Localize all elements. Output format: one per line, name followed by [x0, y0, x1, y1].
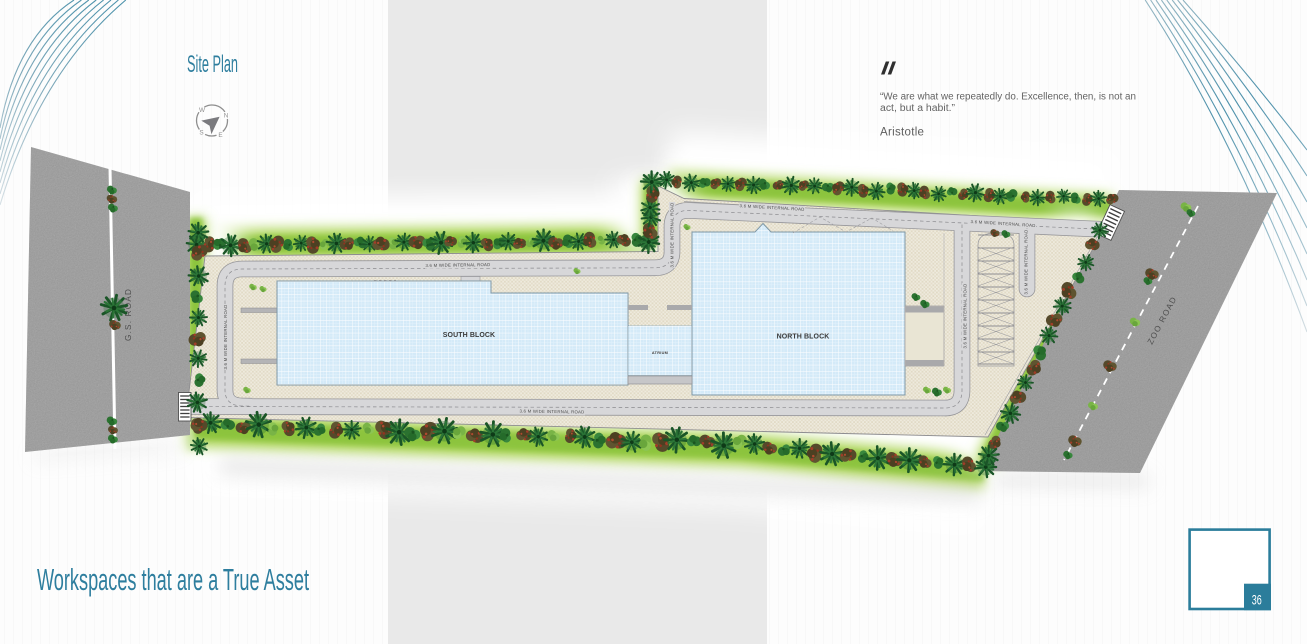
svg-text:“We are what we repeatedly do.: “We are what we repeatedly do. Excellenc…	[880, 91, 1136, 102]
svg-text:W: W	[199, 107, 206, 114]
svg-text:3.6 M WIDE INTERNAL ROAD: 3.6 M WIDE INTERNAL ROAD	[670, 202, 675, 267]
svg-text:Site Plan: Site Plan	[187, 51, 238, 78]
svg-text:36: 36	[1252, 593, 1262, 608]
svg-text:3.6 M WIDE INTERNAL ROAD: 3.6 M WIDE INTERNAL ROAD	[1024, 229, 1029, 294]
svg-text:3.6 M WIDE INTERNAL ROAD: 3.6 M WIDE INTERNAL ROAD	[425, 262, 490, 268]
svg-text:NORTH BLOCK: NORTH BLOCK	[777, 334, 830, 341]
svg-text:Aristotle: Aristotle	[880, 126, 924, 138]
svg-text:3.6 M WIDE INTERNAL ROAD: 3.6 M WIDE INTERNAL ROAD	[223, 304, 228, 369]
svg-text:act, but a habit.”: act, but a habit.”	[880, 103, 955, 114]
svg-text:3.6 M WIDE INTERNAL ROAD: 3.6 M WIDE INTERNAL ROAD	[519, 409, 584, 415]
svg-text:N: N	[224, 113, 229, 120]
svg-text:ATRIUM: ATRIUM	[652, 351, 668, 355]
svg-text:Workspaces that are a True Ass: Workspaces that are a True Asset	[37, 562, 309, 597]
svg-text:3.6 M WIDE INTERNAL ROAD: 3.6 M WIDE INTERNAL ROAD	[963, 283, 968, 348]
svg-text:SOUTH BLOCK: SOUTH BLOCK	[443, 332, 495, 339]
svg-text:S: S	[199, 130, 203, 137]
svg-text:G.S. ROAD: G.S. ROAD	[124, 288, 133, 341]
svg-text:E: E	[218, 132, 222, 139]
